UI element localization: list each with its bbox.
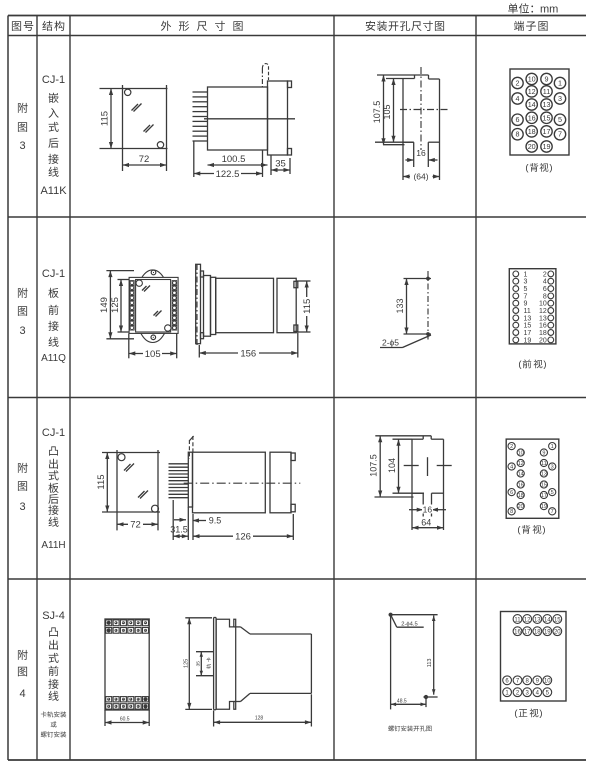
svg-text:(64): (64): [413, 172, 428, 182]
svg-text:15: 15: [554, 617, 561, 623]
svg-text:8: 8: [510, 509, 513, 515]
svg-text:16: 16: [416, 148, 426, 158]
svg-text:3: 3: [551, 464, 554, 470]
svg-text:18: 18: [518, 493, 524, 499]
svg-text:CJ-1: CJ-1: [42, 268, 65, 280]
svg-text:14: 14: [518, 471, 524, 477]
svg-text:133: 133: [395, 298, 405, 313]
svg-text:149: 149: [99, 297, 110, 313]
svg-text:115: 115: [96, 474, 107, 489]
svg-text:125: 125: [110, 297, 121, 313]
svg-text:17: 17: [524, 330, 532, 337]
svg-text:10: 10: [518, 450, 524, 456]
svg-text:19: 19: [543, 142, 551, 151]
svg-text:1: 1: [551, 444, 554, 450]
svg-text:1: 1: [558, 79, 562, 88]
svg-text:72: 72: [130, 520, 141, 531]
svg-text:A11H: A11H: [41, 540, 65, 551]
svg-text:60.5: 60.5: [120, 717, 130, 723]
svg-text:5: 5: [551, 490, 554, 496]
svg-text:6: 6: [516, 115, 520, 124]
svg-text:156: 156: [240, 348, 256, 359]
svg-text:15: 15: [541, 482, 547, 488]
svg-text:12: 12: [524, 617, 531, 623]
svg-text:CJ-1: CJ-1: [42, 427, 65, 439]
svg-text:105: 105: [145, 349, 161, 360]
svg-text:4: 4: [516, 94, 520, 103]
svg-text:64: 64: [421, 518, 431, 528]
svg-text:8: 8: [516, 130, 520, 139]
svg-text:13: 13: [543, 100, 551, 109]
svg-text:107.5: 107.5: [372, 101, 382, 124]
svg-text:18: 18: [534, 630, 541, 636]
svg-text:72: 72: [139, 154, 150, 165]
svg-text:(: (: [518, 359, 522, 370]
svg-text:2: 2: [516, 79, 520, 88]
svg-text:115: 115: [302, 299, 313, 314]
svg-text:6: 6: [505, 679, 509, 685]
svg-text:6: 6: [543, 286, 547, 293]
svg-text:13: 13: [524, 315, 532, 322]
svg-text:7: 7: [524, 293, 528, 300]
svg-text:17: 17: [524, 630, 531, 636]
svg-text:8: 8: [543, 293, 547, 300]
svg-text:2-ϕ5: 2-ϕ5: [382, 337, 399, 347]
svg-text:mm: mm: [540, 3, 558, 15]
svg-text:12: 12: [539, 308, 547, 315]
svg-text:A11K: A11K: [40, 185, 67, 197]
svg-text:16: 16: [518, 482, 524, 488]
svg-text:5: 5: [524, 286, 528, 293]
svg-text:9: 9: [524, 301, 528, 308]
svg-text:7: 7: [516, 679, 520, 685]
svg-text:11: 11: [514, 617, 521, 623]
svg-text:10: 10: [544, 679, 551, 685]
svg-text:20: 20: [528, 142, 536, 151]
svg-text:13: 13: [539, 315, 547, 322]
svg-text:4: 4: [510, 464, 513, 470]
svg-text:2: 2: [516, 691, 520, 697]
svg-text:13: 13: [541, 471, 547, 477]
svg-text:113: 113: [427, 659, 433, 668]
svg-text:3: 3: [558, 94, 562, 103]
svg-text:9: 9: [536, 679, 540, 685]
svg-text:100.5: 100.5: [222, 154, 246, 165]
svg-text:16: 16: [539, 323, 547, 330]
svg-text:122.5: 122.5: [216, 169, 240, 180]
svg-text:10: 10: [539, 301, 547, 308]
svg-text:126: 126: [235, 532, 251, 543]
svg-text:15: 15: [524, 323, 532, 330]
svg-text:15: 15: [543, 113, 551, 122]
svg-text:35: 35: [275, 159, 286, 170]
svg-text:105: 105: [382, 104, 392, 119]
svg-text:16: 16: [528, 113, 536, 122]
svg-text:19: 19: [524, 337, 532, 344]
svg-text:19: 19: [544, 630, 551, 636]
svg-text:20: 20: [518, 504, 524, 510]
svg-text:13: 13: [534, 617, 541, 623]
svg-text:125: 125: [184, 659, 190, 668]
svg-text:4: 4: [19, 688, 25, 700]
svg-text:17: 17: [541, 493, 547, 499]
svg-text:16: 16: [514, 630, 521, 636]
svg-text:5: 5: [546, 691, 550, 697]
svg-text:4: 4: [536, 691, 540, 697]
svg-text:31.5: 31.5: [170, 525, 188, 535]
svg-text:): ): [549, 163, 552, 174]
svg-text:11: 11: [543, 87, 550, 96]
svg-text:107.5: 107.5: [369, 454, 379, 477]
svg-text:17: 17: [543, 127, 551, 136]
svg-text:128: 128: [255, 716, 264, 722]
svg-text:48.5: 48.5: [397, 698, 407, 704]
svg-text:8: 8: [526, 679, 530, 685]
svg-text:35: 35: [196, 661, 202, 667]
svg-text:3: 3: [19, 140, 25, 152]
svg-text:2-ϕ4.5: 2-ϕ4.5: [401, 621, 417, 627]
svg-text:18: 18: [539, 330, 547, 337]
svg-text:1: 1: [524, 271, 528, 278]
svg-text:7: 7: [558, 130, 562, 139]
svg-text:6: 6: [510, 490, 513, 496]
svg-text:5: 5: [558, 115, 562, 124]
svg-text:): ): [539, 708, 542, 719]
svg-text:9: 9: [545, 75, 549, 84]
svg-text:A11Q: A11Q: [41, 353, 66, 364]
svg-text:4: 4: [543, 279, 547, 286]
svg-text:3: 3: [19, 325, 25, 337]
svg-text:): ): [542, 525, 545, 536]
svg-text:18: 18: [528, 127, 536, 136]
svg-text:2: 2: [510, 444, 513, 450]
svg-text:SJ-4: SJ-4: [42, 610, 65, 622]
svg-text:CJ-1: CJ-1: [42, 74, 65, 86]
svg-text:3: 3: [19, 501, 25, 513]
svg-text:9.5: 9.5: [209, 516, 222, 526]
svg-text:16: 16: [423, 505, 433, 515]
svg-text:2: 2: [543, 271, 547, 278]
svg-text:): ): [543, 359, 546, 370]
svg-text:1: 1: [505, 691, 509, 697]
svg-text:14: 14: [528, 100, 536, 109]
svg-text:11: 11: [541, 461, 547, 467]
svg-text:14: 14: [544, 617, 551, 623]
svg-text:104: 104: [387, 458, 397, 473]
svg-text:(: (: [514, 708, 518, 719]
svg-text:11: 11: [524, 308, 531, 315]
svg-text:3: 3: [524, 279, 528, 286]
svg-text:20: 20: [554, 630, 561, 636]
svg-text:12: 12: [518, 461, 524, 467]
svg-text:(: (: [525, 163, 529, 174]
svg-text:20: 20: [539, 337, 547, 344]
svg-text:115: 115: [100, 111, 111, 126]
svg-text:12: 12: [528, 87, 536, 96]
svg-text:3: 3: [526, 691, 530, 697]
svg-text:10: 10: [528, 75, 536, 84]
svg-text:(: (: [517, 525, 521, 536]
svg-text:9: 9: [542, 450, 545, 456]
svg-text:19: 19: [541, 504, 547, 510]
svg-text:7: 7: [551, 509, 554, 515]
